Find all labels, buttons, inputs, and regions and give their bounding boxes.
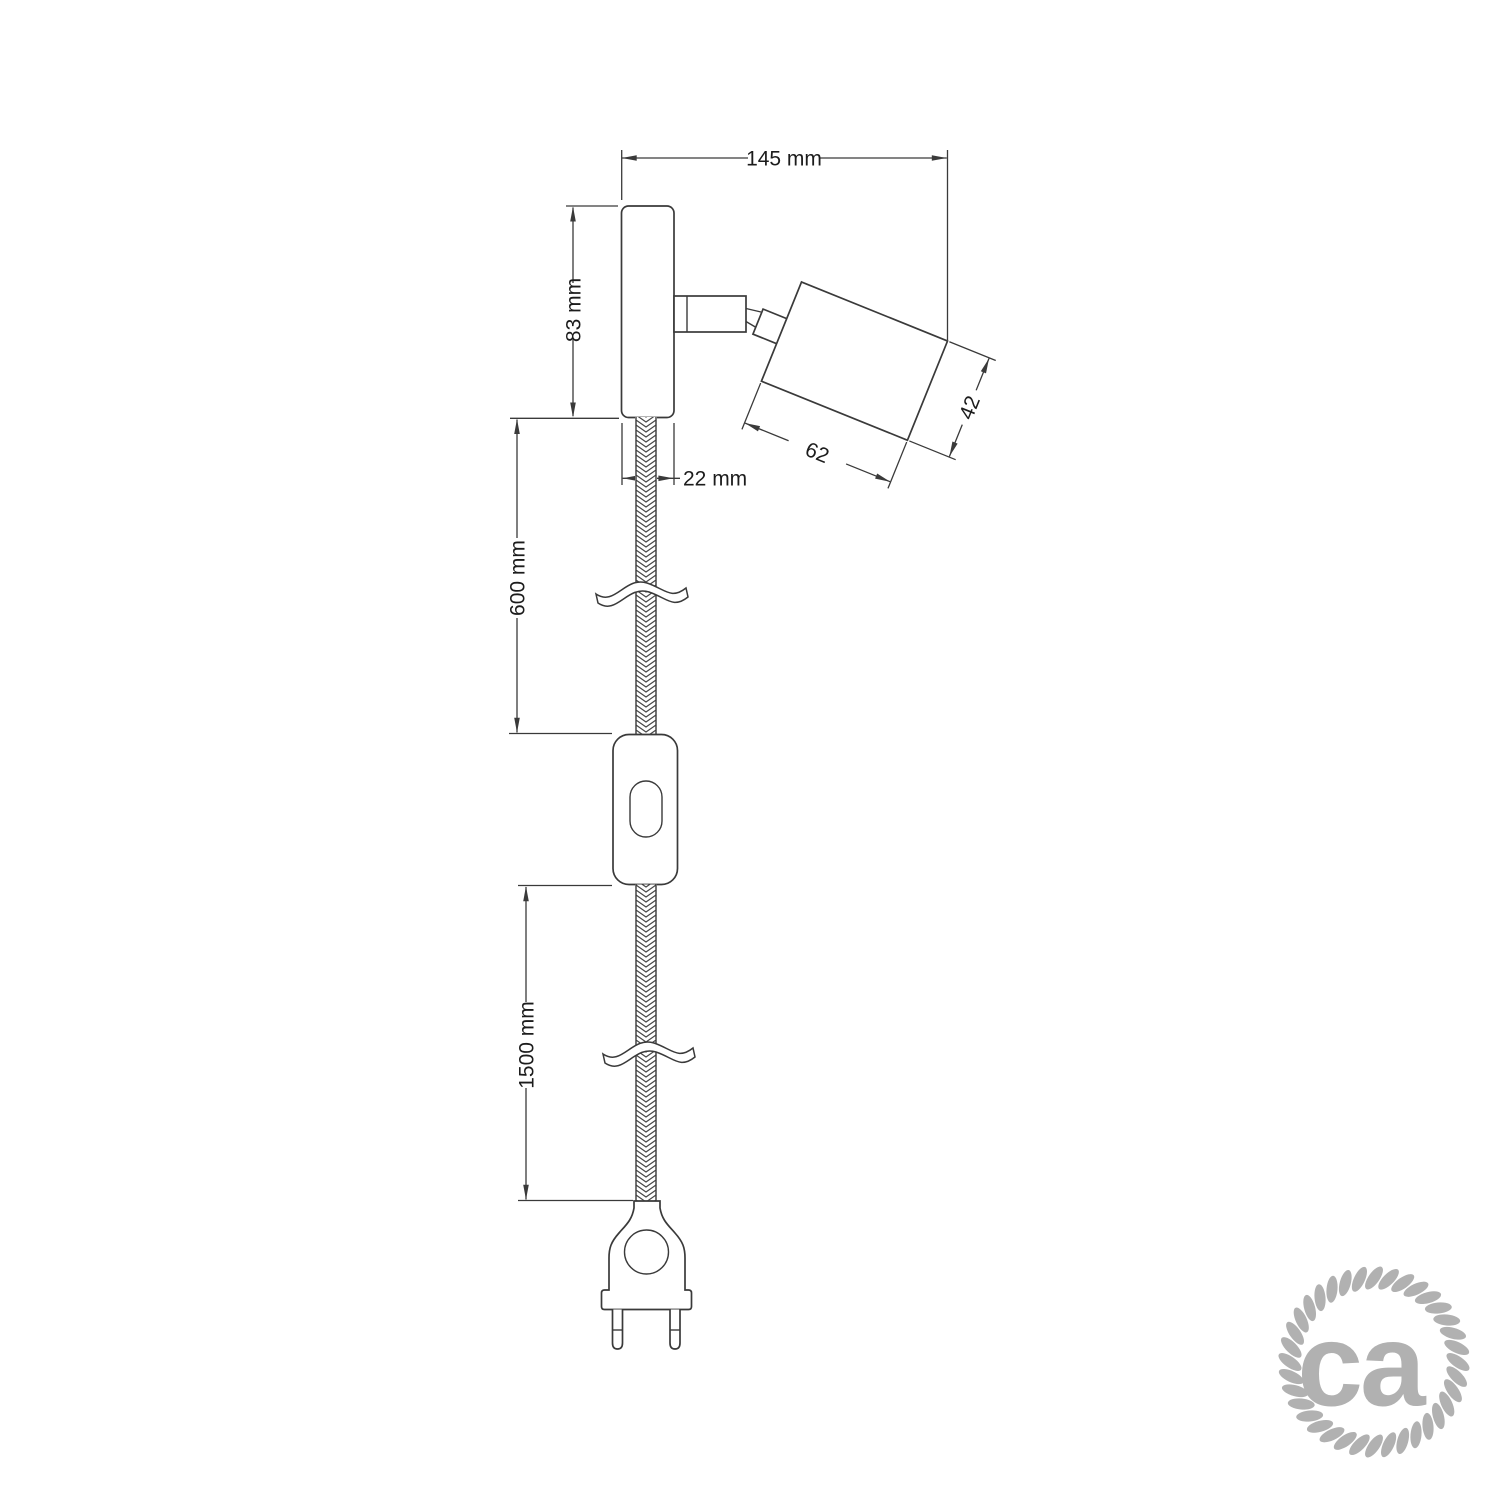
plug-pins — [613, 1310, 681, 1350]
logo-wordmark: ca — [1297, 1300, 1427, 1432]
dim-upper-cable-label: 600 mm — [506, 540, 529, 616]
euro-plug — [602, 1201, 692, 1349]
braided-cable-upper — [635, 417, 657, 735]
spotlight-head — [761, 282, 947, 440]
brand-logo: ca — [1259, 1248, 1484, 1475]
dim-lower-cable: 1500 mm — [515, 886, 633, 1201]
dimensional-drawing: 145 mm 83 mm 22 mm 600 mm — [0, 0, 1500, 1500]
wall-bracket-plate — [622, 206, 675, 418]
dim-bracket-height: 83 mm — [562, 206, 618, 418]
pivot-arm — [674, 296, 761, 332]
dim-bracket-depth-label: 22 mm — [683, 468, 747, 491]
dim-overall-width-label: 145 mm — [746, 147, 822, 170]
dim-spot-diameter-label: 42 — [955, 393, 985, 423]
dim-upper-cable: 600 mm — [506, 418, 619, 733]
inline-switch — [613, 735, 678, 885]
dim-spot-length-label: 62 — [802, 438, 832, 468]
dim-lower-cable-label: 1500 mm — [515, 1001, 538, 1089]
dim-bracket-height-label: 83 mm — [562, 278, 585, 342]
